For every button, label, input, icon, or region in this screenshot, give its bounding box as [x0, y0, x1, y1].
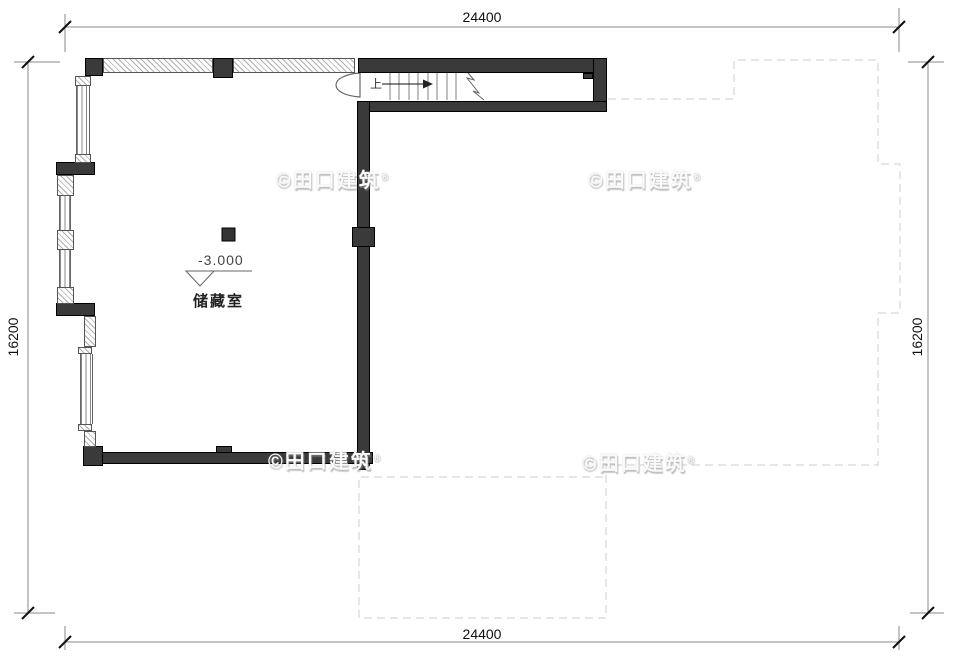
dim-bottom-label: 24400 [432, 626, 532, 642]
dim-right-label: 16200 [909, 287, 925, 387]
bottom-wall-pier [216, 446, 232, 453]
watermark: ©田口建筑® [268, 445, 382, 474]
wall-top-pier [213, 58, 233, 78]
wall-bottom-left-corner [83, 446, 103, 466]
room-label: 储藏室 [193, 290, 244, 311]
top-wall-hatch-left [103, 58, 213, 73]
dimension-ticks [22, 21, 934, 648]
elevation-marker-icon [186, 271, 252, 286]
registered-mark-icon: ® [687, 454, 696, 465]
stair-direction-label: 上 [370, 75, 382, 92]
watermark: ©田口建筑® [582, 447, 696, 476]
lower-jamb-bottom [84, 431, 96, 447]
window-frame-stub-4 [78, 424, 92, 431]
bay-pier-top [57, 175, 74, 196]
window-glazing-bay-upper [59, 196, 71, 230]
window-frame-stub-3 [78, 347, 92, 354]
elevation-label: -3.000 [198, 252, 244, 268]
window-glazing-top [76, 86, 90, 154]
window-frame-stub-2 [75, 154, 91, 163]
watermark: ©田口建筑® [588, 164, 702, 193]
door-swing-icon [336, 73, 360, 97]
wall-top-left-corner [85, 58, 103, 76]
watermark-text: ©田口建筑 [582, 453, 687, 475]
watermark-text: ©田口建筑 [276, 170, 381, 192]
stair-bottom-wall [358, 101, 607, 112]
stair-inner-notch [583, 73, 593, 79]
registered-mark-icon: ® [381, 171, 390, 182]
bay-window-top-stub [56, 162, 95, 175]
column-marker [222, 228, 235, 241]
middle-wall-pier [352, 227, 375, 247]
watermark-text: ©田口建筑 [588, 170, 693, 192]
window-frame-stub-1 [75, 76, 91, 86]
bay-pier-bottom [57, 287, 74, 304]
lower-jamb-top [84, 316, 96, 347]
registered-mark-icon: ® [373, 452, 382, 463]
dim-top-label: 24400 [432, 9, 532, 25]
plan-linework [0, 0, 960, 665]
dim-left-label: 16200 [5, 287, 21, 387]
top-wall-hatch-right [233, 58, 355, 73]
floor-plan-canvas: 24400 24400 16200 16200 储藏室 -3.000 上 ©田口… [0, 0, 960, 665]
bay-window-bottom-stub [56, 303, 95, 316]
stair-top-wall [358, 58, 607, 73]
registered-mark-icon: ® [693, 171, 702, 182]
bay-pier-middle [57, 230, 74, 250]
window-glazing-bottom [80, 354, 93, 424]
window-glazing-bay-lower [59, 250, 71, 287]
upper-floor-dashed-outline [359, 60, 900, 618]
watermark: ©田口建筑® [276, 164, 390, 193]
middle-vertical-wall [357, 101, 370, 470]
watermark-text: ©田口建筑 [268, 451, 373, 473]
